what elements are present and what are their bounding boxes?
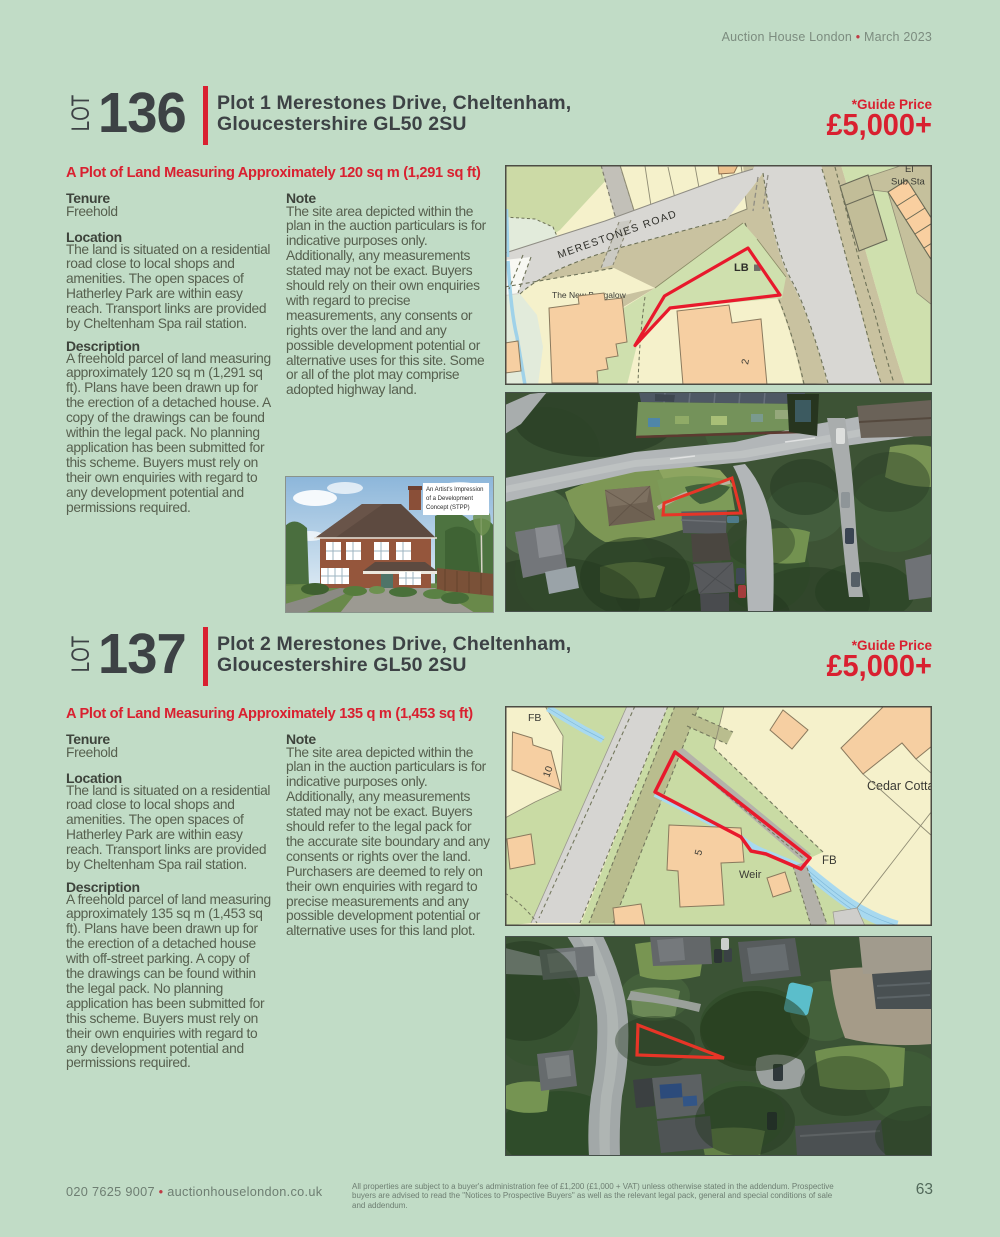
svg-text:FB: FB [822, 855, 837, 867]
svg-text:of a Development: of a Development [426, 496, 473, 502]
svg-text:An Artist's Impression: An Artist's Impression [426, 487, 484, 493]
svg-text:Weir: Weir [739, 869, 762, 881]
svg-text:Concept (STPP): Concept (STPP) [426, 505, 470, 511]
svg-text:FB: FB [528, 712, 541, 724]
svg-text:Sub Sta: Sub Sta [891, 177, 926, 188]
svg-text:LB: LB [734, 262, 749, 274]
